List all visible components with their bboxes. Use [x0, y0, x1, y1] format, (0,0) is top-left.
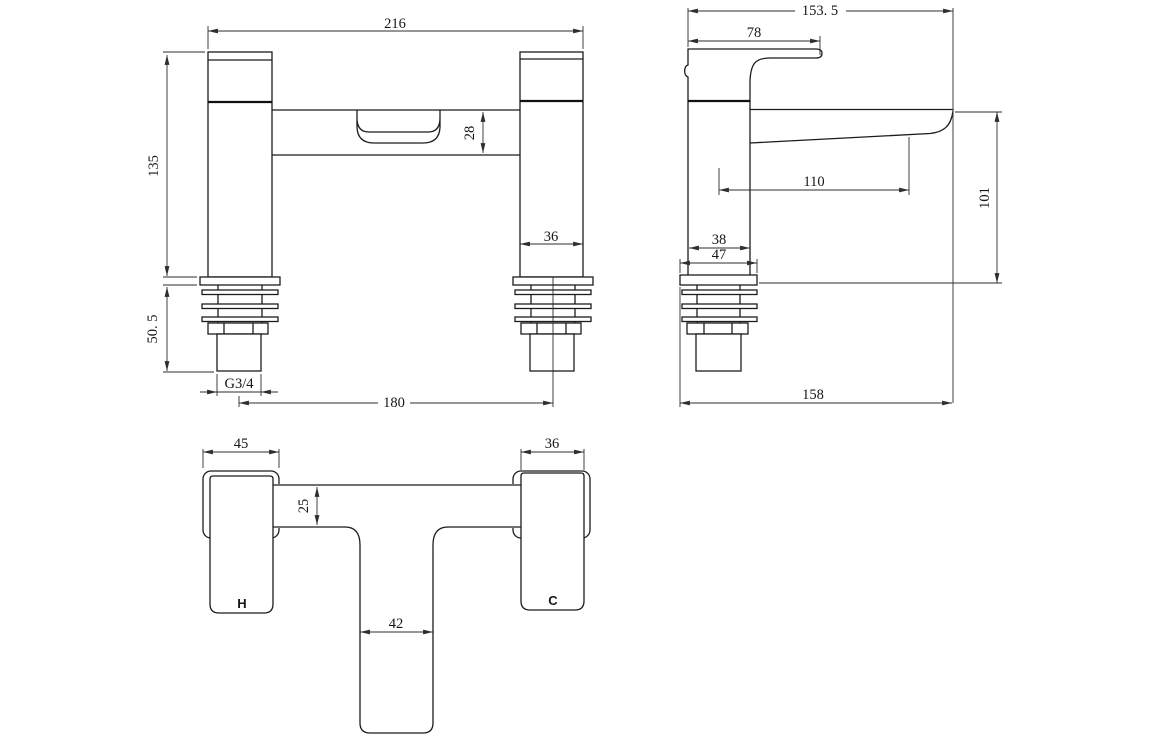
cold-label: C: [548, 593, 558, 608]
dim-text-78: 78: [747, 25, 762, 41]
dim-text-180: 180: [383, 395, 405, 411]
dim-text-158: 158: [802, 387, 824, 403]
dim-text-50-5: 50. 5: [145, 315, 161, 344]
dim-text-25: 25: [296, 499, 312, 514]
dim-text-36-front: 36: [544, 229, 559, 245]
bottom-cold-handle: [521, 473, 584, 610]
dim-text-110: 110: [803, 174, 824, 190]
dim-text-38: 38: [712, 232, 727, 248]
dim-text-135: 135: [146, 155, 162, 177]
dim-text-47: 47: [712, 247, 727, 263]
technical-drawing-page: 216 135 28 36 50. 5 G3/4: [0, 0, 1156, 742]
dim-text-45: 45: [234, 436, 249, 452]
hot-label: H: [237, 596, 246, 611]
dim-text-216: 216: [384, 16, 406, 32]
dim-text-g34: G3/4: [225, 376, 255, 392]
dim-text-101: 101: [977, 187, 993, 209]
dim-text-36-bottom: 36: [545, 436, 560, 452]
dim-text-153-5: 153. 5: [802, 3, 838, 19]
dim-text-42: 42: [389, 616, 404, 632]
bath-filler-dimension-drawing: 216 135 28 36 50. 5 G3/4: [0, 0, 1156, 742]
dim-text-28: 28: [462, 126, 478, 141]
paper-background: [0, 0, 1156, 742]
bottom-hot-handle: [210, 476, 273, 613]
